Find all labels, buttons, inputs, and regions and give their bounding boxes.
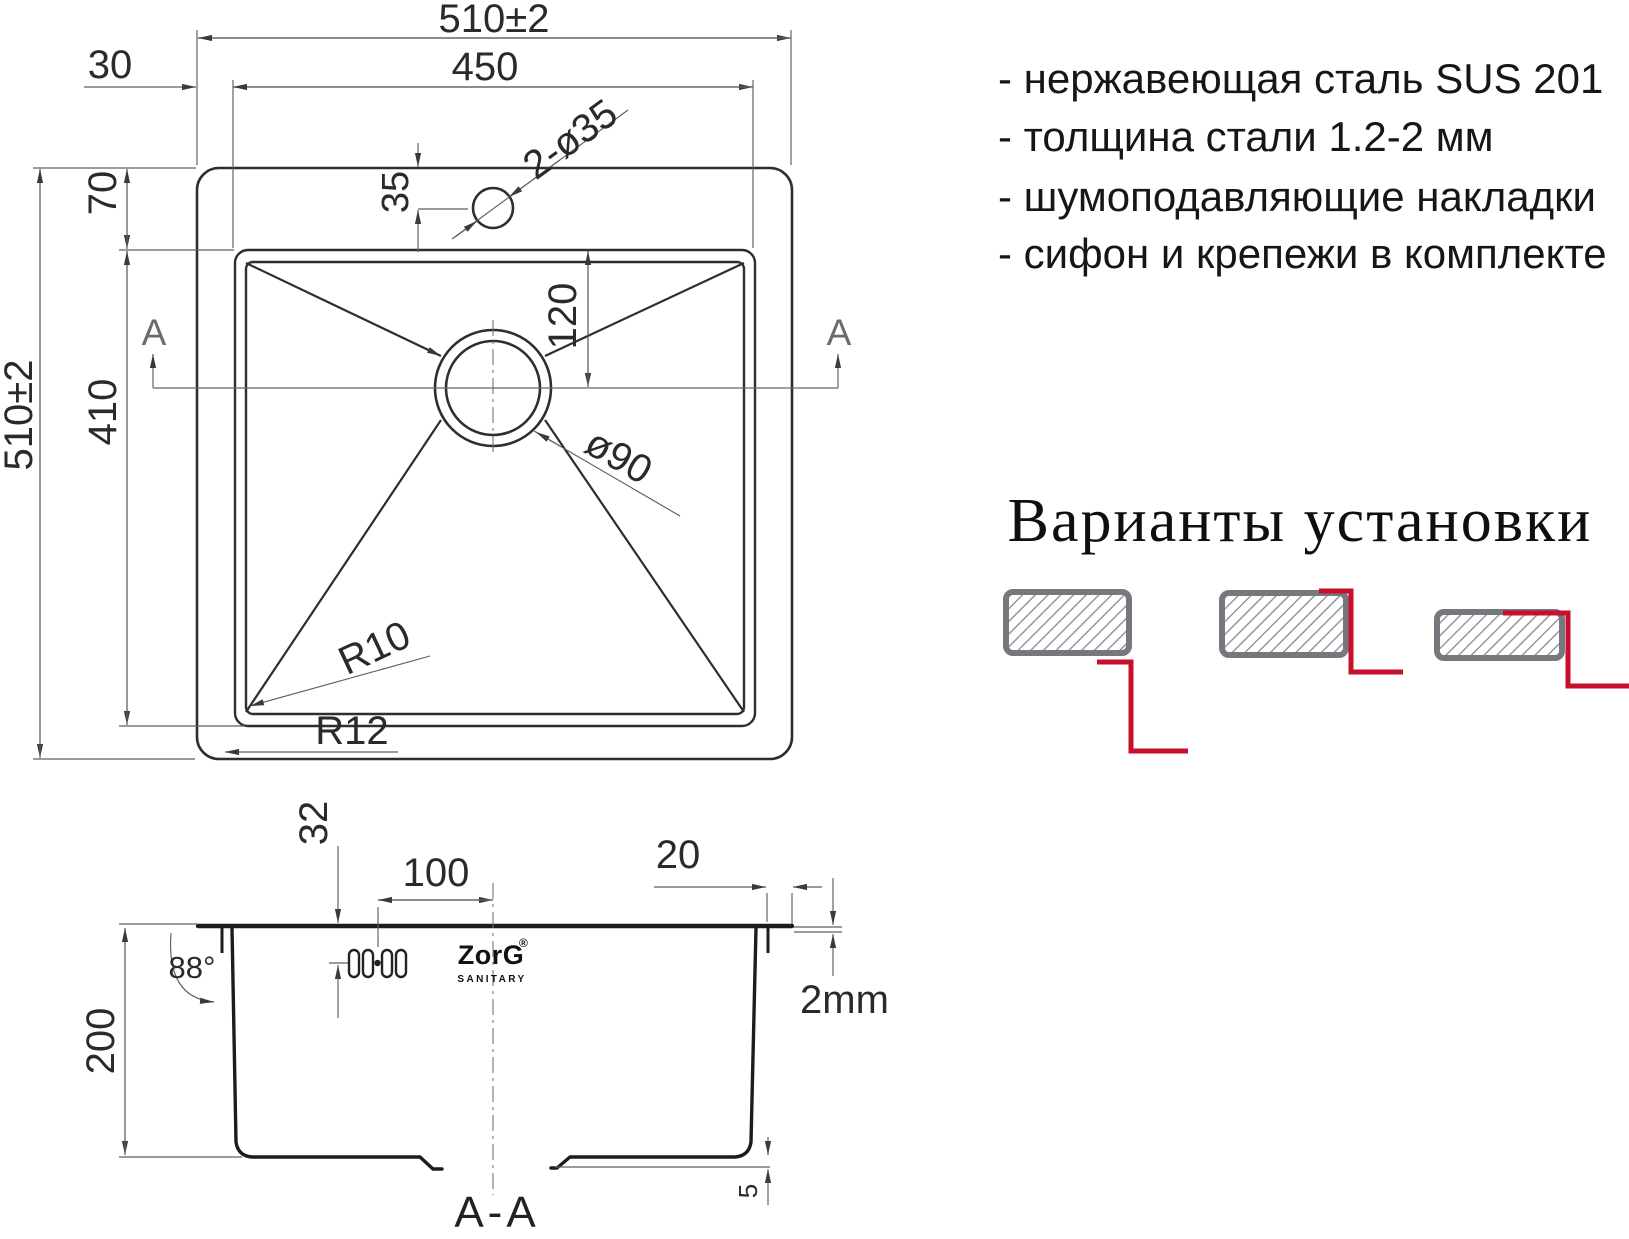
sink-technical-drawing: 510±2 450 30 510±2 410 70 35 120 2-ø35 ø… bbox=[0, 0, 1629, 1239]
dim-edge-offset: 30 bbox=[88, 43, 133, 87]
countertop-section bbox=[1222, 593, 1346, 655]
drawing-canvas: 510±2 450 30 510±2 410 70 35 120 2-ø35 ø… bbox=[0, 0, 1629, 1239]
top-view-outline bbox=[197, 168, 792, 759]
dim-rim-to-holes: 32 bbox=[292, 801, 336, 846]
dim-steel-thickness: 2mm bbox=[800, 978, 889, 1022]
countertop-section bbox=[1006, 592, 1129, 653]
feature-item: - сифон и крепежи в комплекте bbox=[998, 230, 1607, 277]
logo-text: ZorG bbox=[458, 940, 525, 970]
section-title: A-A bbox=[454, 1188, 539, 1237]
dim-holes-to-center: 100 bbox=[403, 851, 470, 895]
top-view-dimension-labels: 510±2 450 30 510±2 410 70 35 120 2-ø35 ø… bbox=[0, 0, 852, 753]
feature-item: - нержавеющая сталь SUS 201 bbox=[998, 55, 1603, 102]
logo-subtitle: SANITARY bbox=[457, 974, 526, 985]
sink-rim-line bbox=[1097, 662, 1188, 751]
features-list: - нержавеющая сталь SUS 201 - толщина ст… bbox=[998, 55, 1607, 277]
dim-height-bowl: 410 bbox=[81, 379, 125, 446]
feature-item: - толщина стали 1.2-2 мм bbox=[998, 113, 1494, 160]
installation-variant-flush bbox=[1222, 591, 1403, 672]
section-view-outline bbox=[198, 883, 792, 1195]
label-drain-diameter: ø90 bbox=[578, 420, 660, 493]
section-cut-line bbox=[153, 354, 838, 388]
dim-drain-offset: 120 bbox=[541, 283, 585, 350]
dim-flange-width: 20 bbox=[656, 833, 701, 877]
dim-depth: 200 bbox=[79, 1008, 123, 1075]
installation-variant-undermount bbox=[1006, 592, 1188, 751]
dim-wall-angle: 88° bbox=[169, 950, 216, 985]
section-marker-right: A bbox=[827, 312, 852, 353]
label-faucet-holes: 2-ø35 bbox=[515, 91, 625, 188]
dim-height-overall: 510±2 bbox=[0, 360, 41, 471]
dim-top-offset: 70 bbox=[81, 171, 125, 216]
feature-item: - шумоподавляющие накладки bbox=[998, 173, 1596, 220]
countertop-section bbox=[1437, 612, 1562, 658]
dim-width-bowl: 450 bbox=[452, 45, 519, 89]
installation-title: Варианты установки bbox=[1008, 487, 1593, 555]
section-view-dimension-labels: 200 88° 32 100 20 2mm 5 A-A bbox=[79, 801, 889, 1237]
dim-width-overall: 510±2 bbox=[439, 0, 550, 41]
brand-logo: ZorG ® SANITARY bbox=[457, 936, 528, 985]
section-view-dimension-lines bbox=[119, 846, 842, 1205]
dim-faucet-offset: 35 bbox=[375, 171, 417, 213]
label-corner-radius-inner: R10 bbox=[332, 613, 417, 684]
dim-bottom-step: 5 bbox=[733, 1184, 763, 1198]
installation-variant-overmount bbox=[1437, 612, 1629, 686]
overflow-holes bbox=[349, 950, 406, 977]
faucet-hole bbox=[473, 188, 513, 228]
label-corner-radius-outer: R12 bbox=[315, 709, 388, 753]
section-marker-left: A bbox=[142, 312, 167, 353]
registered-mark: ® bbox=[519, 936, 528, 950]
